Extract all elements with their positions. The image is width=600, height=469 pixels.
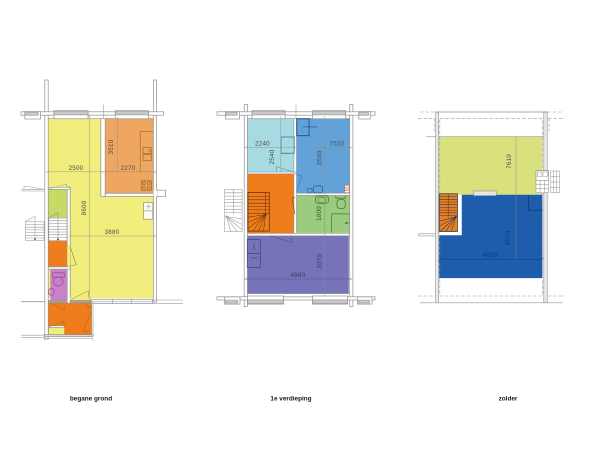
svg-text:3070: 3070 (316, 254, 323, 269)
svg-text:1e verdieping: 1e verdieping (270, 396, 311, 403)
svg-text:4880: 4880 (483, 252, 498, 259)
svg-text:2500: 2500 (69, 165, 84, 172)
svg-text:2240: 2240 (255, 140, 270, 147)
svg-text:8600: 8600 (81, 200, 88, 215)
svg-text:begane grond: begane grond (70, 396, 112, 403)
svg-text:1800: 1800 (316, 206, 323, 221)
svg-text:zolder: zolder (499, 396, 518, 403)
svg-text:3880: 3880 (105, 229, 120, 236)
svg-text:2270: 2270 (121, 165, 136, 172)
svg-text:4880: 4880 (291, 272, 306, 279)
svg-text:2540: 2540 (269, 149, 276, 164)
svg-text:7610: 7610 (506, 154, 513, 169)
svg-text:4970: 4970 (505, 230, 512, 245)
svg-text:7520: 7520 (330, 140, 345, 147)
svg-text:3540: 3540 (317, 150, 324, 165)
svg-text:3510: 3510 (108, 139, 115, 154)
